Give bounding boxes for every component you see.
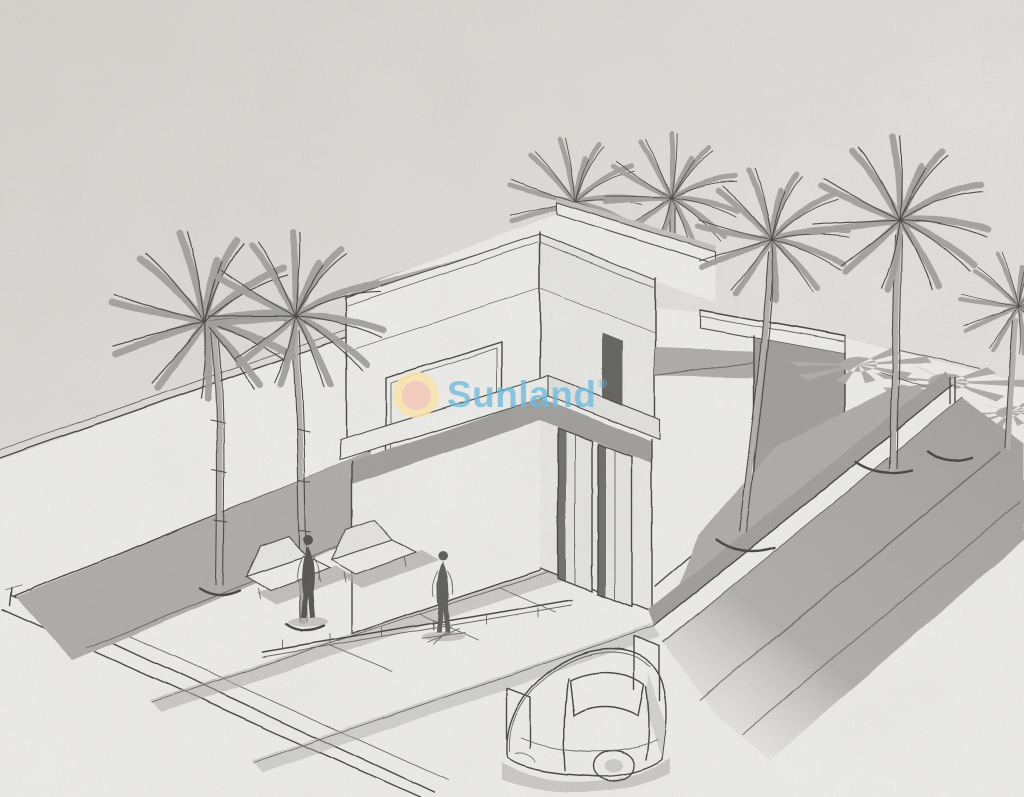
- paper-grain: [0, 0, 1024, 797]
- sketch-canvas: [0, 0, 1024, 797]
- sketch-image: Sunland ®: [0, 0, 1024, 797]
